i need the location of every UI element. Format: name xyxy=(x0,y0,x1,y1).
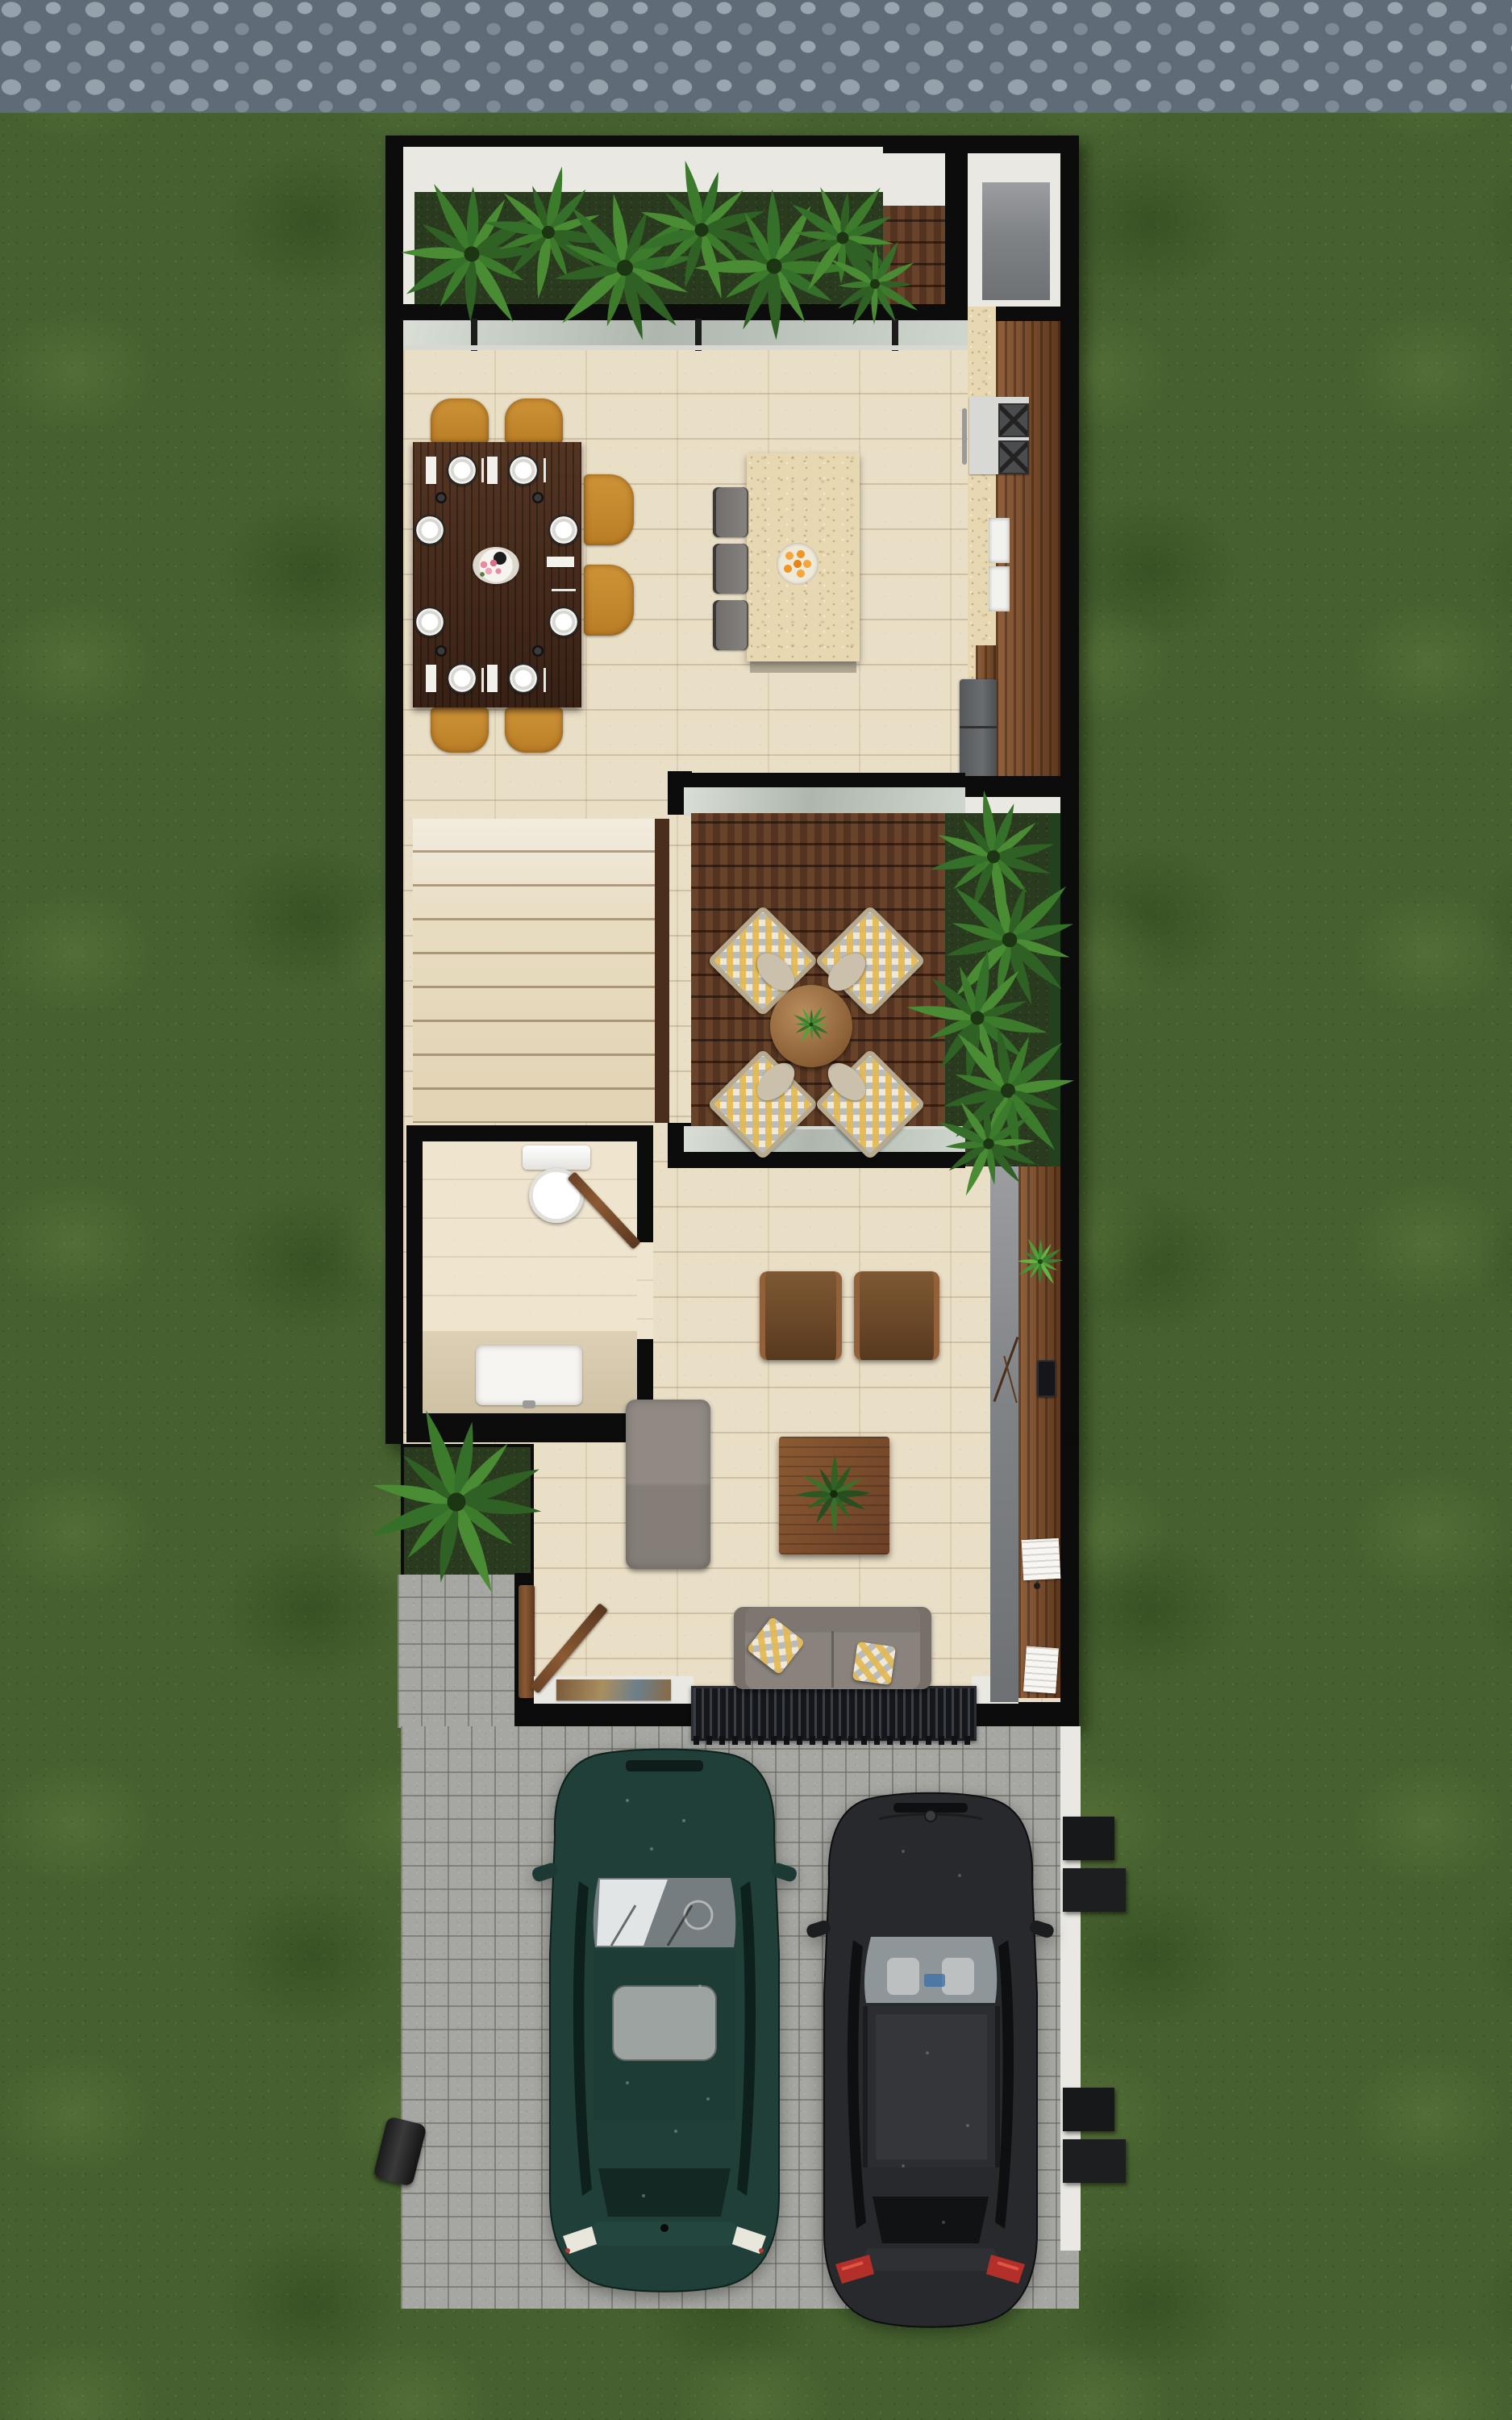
courtyard-planter xyxy=(945,813,1048,1166)
sink-basin xyxy=(989,566,1010,611)
book-stack xyxy=(1023,1646,1059,1694)
dining-chair xyxy=(584,565,634,636)
console-floor-strip xyxy=(990,1166,1018,1702)
bar-stool xyxy=(713,600,748,650)
cutlery xyxy=(544,458,546,482)
stair-stringer xyxy=(655,819,669,1123)
place-setting-plate xyxy=(508,663,539,694)
car-green-sedan xyxy=(531,1744,798,2301)
bathroom-door-opening xyxy=(637,1242,653,1339)
place-setting-plate xyxy=(414,607,445,637)
planter-wall-face xyxy=(403,147,883,194)
cooktop-grate xyxy=(998,440,1029,474)
oranges xyxy=(781,548,814,580)
dining-chair xyxy=(505,707,563,753)
island-base-shadow xyxy=(750,660,856,673)
door-frame xyxy=(519,1585,535,1698)
courtyard-planter-wall xyxy=(1048,813,1060,1166)
side-bowl xyxy=(435,492,447,503)
courtyard-top-glass xyxy=(684,787,965,816)
coffee-table xyxy=(779,1437,889,1554)
place-setting-plate xyxy=(548,515,579,545)
napkin xyxy=(426,457,436,484)
cutlery xyxy=(544,668,546,692)
car-black-crossover xyxy=(806,1787,1054,2335)
dining-chair xyxy=(505,398,563,444)
deck-box-wall-face xyxy=(883,153,945,206)
place-setting-plate xyxy=(447,455,477,486)
dining-chair xyxy=(431,707,489,753)
lounge-armchair-brown xyxy=(760,1271,842,1360)
place-setting-plate xyxy=(447,663,477,694)
sofa-pillow xyxy=(852,1642,896,1685)
napkin xyxy=(487,457,498,484)
glass-track xyxy=(403,345,968,350)
sink-basin xyxy=(989,518,1010,563)
sofa-seam xyxy=(831,1631,834,1688)
bar-stool xyxy=(713,544,748,594)
entry-grate xyxy=(691,1686,977,1741)
planter-deck-box xyxy=(883,206,945,307)
place-setting-plate xyxy=(508,455,539,486)
vanity-sink xyxy=(476,1346,582,1405)
doormat-art xyxy=(556,1679,671,1700)
garden-step-planter xyxy=(1063,1817,1114,1860)
chaise-bench xyxy=(626,1400,710,1569)
cooktop-grate xyxy=(998,403,1029,437)
garden-planter-top xyxy=(414,192,883,304)
napkin xyxy=(487,665,498,692)
garden-step-planter xyxy=(1063,2088,1114,2131)
divider-wall xyxy=(945,153,968,307)
phone-on-console xyxy=(1037,1360,1056,1397)
staircase xyxy=(413,819,655,1123)
entry-planter xyxy=(401,1444,534,1581)
side-bowl xyxy=(532,492,544,503)
refrigerator xyxy=(960,679,997,778)
refrigerator-seam xyxy=(960,726,997,728)
sink-faucet xyxy=(523,1400,535,1408)
cutlery xyxy=(481,668,484,692)
centerpiece-flowers xyxy=(477,558,506,581)
napkin xyxy=(426,665,436,692)
patio-round-table xyxy=(770,985,852,1067)
side-bowl xyxy=(435,645,447,657)
place-setting-plate xyxy=(548,607,579,637)
oven-handle xyxy=(962,408,967,465)
courtyard-top-rail xyxy=(684,773,965,787)
garden-step-planter xyxy=(1063,2139,1126,2183)
book-stack xyxy=(1022,1538,1061,1580)
lounge-armchair-brown xyxy=(854,1271,939,1360)
toilet-tank xyxy=(523,1145,590,1170)
napkin xyxy=(547,557,574,567)
cutlery xyxy=(481,458,484,482)
glass-wall-header xyxy=(403,304,968,320)
dining-chair xyxy=(584,474,634,545)
dining-chair xyxy=(431,398,489,444)
cutlery xyxy=(552,589,576,591)
floorplan-render xyxy=(0,0,1512,2420)
place-setting-plate xyxy=(414,515,445,545)
bar-stool xyxy=(713,487,748,537)
side-walkway xyxy=(398,1575,514,1728)
console-knob xyxy=(1034,1583,1040,1589)
courtyard-bottom-rail xyxy=(684,1152,965,1168)
courtyard-bottom-glass xyxy=(684,1126,965,1155)
media-console xyxy=(1018,1166,1060,1698)
side-bowl xyxy=(532,645,544,657)
cobblestone-street xyxy=(0,0,1512,113)
utility-patio-floor xyxy=(982,182,1050,300)
garden-step-planter xyxy=(1063,1868,1126,1912)
